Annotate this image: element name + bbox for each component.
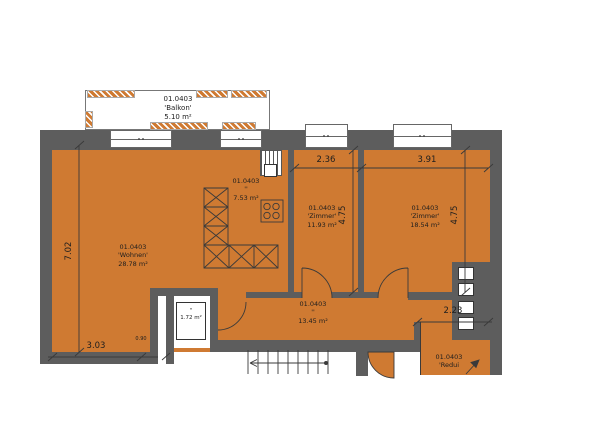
wall-wc-top bbox=[150, 288, 218, 296]
wall-zimmer-1-zimmer-2 bbox=[358, 150, 364, 292]
dim-label-zimmer-2-width: 3.91 bbox=[407, 155, 447, 165]
room-area: 5.10 m² bbox=[130, 113, 226, 122]
room-label-zimmer-2: 01.0403 'Zimmer' 18.54 m² bbox=[395, 204, 455, 229]
balcony-slab-hatch bbox=[85, 111, 93, 128]
room-area: 7.53 m² bbox=[218, 194, 274, 202]
shaft-box bbox=[458, 283, 474, 296]
room-area: 13.45 m² bbox=[283, 317, 343, 325]
wall-left bbox=[40, 130, 52, 364]
room-area: 1.72 m² bbox=[176, 315, 206, 322]
wall-korridor-top-a bbox=[246, 292, 302, 298]
room-name: 'Balkon' bbox=[130, 104, 226, 113]
balcony-slab-hatch bbox=[231, 90, 267, 98]
room-name: '' bbox=[218, 185, 274, 193]
wall-bottom-left bbox=[40, 352, 158, 364]
dim-label-zimmer-2-height: 4.75 bbox=[450, 200, 460, 230]
wall-right bbox=[490, 148, 502, 375]
shaft-box bbox=[458, 317, 474, 330]
room-label-reduit: 01.0403 'Redui bbox=[420, 353, 478, 370]
wall-reduit-left bbox=[414, 322, 420, 352]
room-code: 01.0403 bbox=[130, 95, 226, 104]
window-wohnen-right bbox=[220, 130, 262, 148]
dim-label-door: 0.90 bbox=[130, 336, 152, 342]
door-arc-entrance bbox=[368, 352, 394, 378]
room-label-kueche: 01.0403 '' 7.53 m² bbox=[218, 177, 274, 202]
dim-label-bottom-left: 3.03 bbox=[80, 341, 112, 351]
wall-wc-left-inner bbox=[166, 288, 174, 364]
dim-label-left-height: 7.02 bbox=[64, 236, 74, 266]
window-zimmer-1 bbox=[305, 124, 348, 148]
wall-wc-left-outer bbox=[150, 288, 158, 352]
room-name: '' bbox=[283, 308, 343, 316]
balcony-slab-hatch bbox=[150, 122, 208, 130]
balcony-slab-hatch bbox=[222, 122, 256, 130]
kitchen-sink-basin bbox=[264, 164, 277, 177]
room-code: 01.0403 bbox=[283, 300, 343, 308]
window-zimmer-2 bbox=[393, 124, 452, 148]
wall-wc-right bbox=[210, 288, 218, 352]
room-label-wohnen: 01.0403 'Wohnen' 28.78 m² bbox=[103, 243, 163, 268]
room-label-nasszelle: '' 1.72 m² bbox=[176, 308, 206, 322]
door-gap-zimmer-1 bbox=[302, 292, 332, 298]
room-label-korridor: 01.0403 '' 13.45 m² bbox=[283, 300, 343, 325]
shaft-box bbox=[458, 267, 474, 280]
room-name: 'Redui bbox=[420, 361, 478, 369]
room-code: 01.0403 bbox=[218, 177, 274, 185]
dim-label-zimmer-1-width: 2.36 bbox=[306, 155, 346, 165]
dim-label-zimmer-1-height: 4.75 bbox=[338, 200, 348, 230]
room-label-balkon: 01.0403 'Balkon' 5.10 m² bbox=[130, 95, 226, 122]
room-code: 01.0403 bbox=[420, 353, 478, 361]
dim-label-reduit-width: 2.23 bbox=[437, 306, 469, 316]
wc-door-niche bbox=[158, 296, 166, 364]
room-area: 28.78 m² bbox=[103, 260, 163, 268]
room-name: 'Wohnen' bbox=[103, 251, 163, 259]
room-code: 01.0403 bbox=[395, 204, 455, 212]
balcony-slab-hatch bbox=[87, 90, 135, 98]
door-gap-zimmer-2 bbox=[378, 292, 408, 298]
staircase bbox=[248, 350, 328, 374]
stair-pillar bbox=[356, 352, 368, 376]
room-name: 'Zimmer' bbox=[395, 212, 455, 220]
window-wohnen-left bbox=[110, 130, 172, 148]
wall-korridor-top-b bbox=[332, 292, 378, 298]
room-area: 18.54 m² bbox=[395, 221, 455, 229]
room-code: 01.0403 bbox=[103, 243, 163, 251]
wall-korridor-bottom bbox=[210, 340, 420, 352]
floor-plan: 01.0403 'Balkon' 5.10 m² 01.0403 'Wohnen… bbox=[0, 0, 600, 424]
